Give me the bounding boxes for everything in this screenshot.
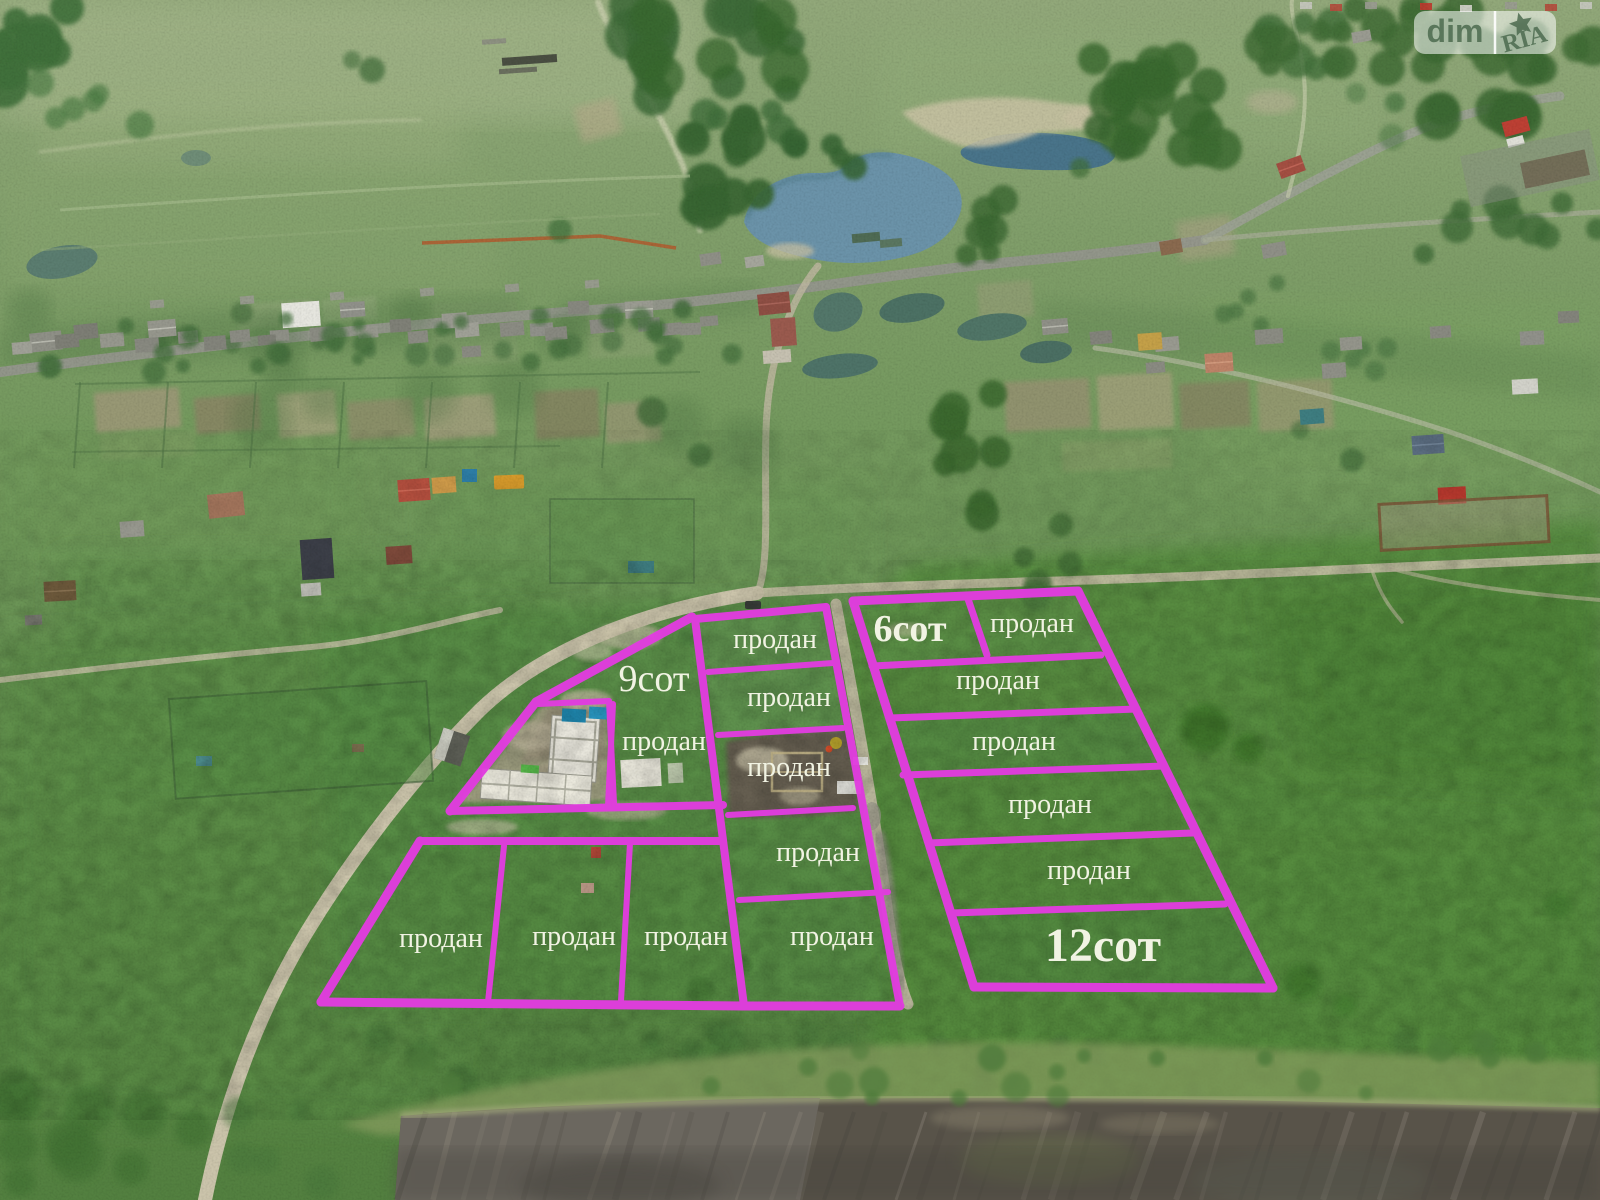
svg-text:продан: продан [747,752,831,783]
svg-text:продан: продан [747,682,831,713]
svg-text:продан: продан [532,921,616,952]
svg-text:продан: продан [990,608,1074,639]
svg-text:12сот: 12сот [1045,919,1161,972]
svg-text:9сот: 9сот [619,658,690,700]
svg-text:продан: продан [399,923,483,954]
svg-text:продан: продан [790,921,874,952]
svg-text:продан: продан [776,837,860,868]
svg-text:продан: продан [1047,855,1131,886]
svg-text:dim: dim [1427,13,1484,49]
svg-text:продан: продан [972,726,1056,757]
svg-text:продан: продан [644,921,728,952]
svg-text:6сот: 6сот [873,608,946,650]
svg-text:продан: продан [956,665,1040,696]
svg-text:продан: продан [733,624,817,655]
svg-text:продан: продан [1008,789,1092,820]
svg-text:продан: продан [622,726,706,757]
